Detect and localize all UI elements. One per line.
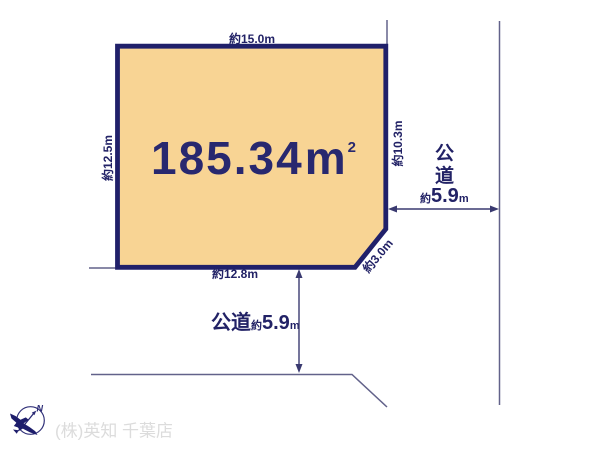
svg-text:約10.3m: 約10.3m — [390, 120, 405, 166]
svg-text:公: 公 — [435, 143, 454, 165]
svg-text:約12.5m: 約12.5m — [100, 135, 115, 181]
svg-text:約12.8m: 約12.8m — [212, 266, 258, 281]
svg-text:N: N — [37, 404, 44, 414]
svg-text:(株)英知 千葉店: (株)英知 千葉店 — [55, 422, 173, 441]
svg-text:185.34m2: 185.34m2 — [151, 132, 358, 184]
svg-text:道: 道 — [435, 164, 454, 187]
svg-text:約15.0m: 約15.0m — [229, 31, 275, 46]
